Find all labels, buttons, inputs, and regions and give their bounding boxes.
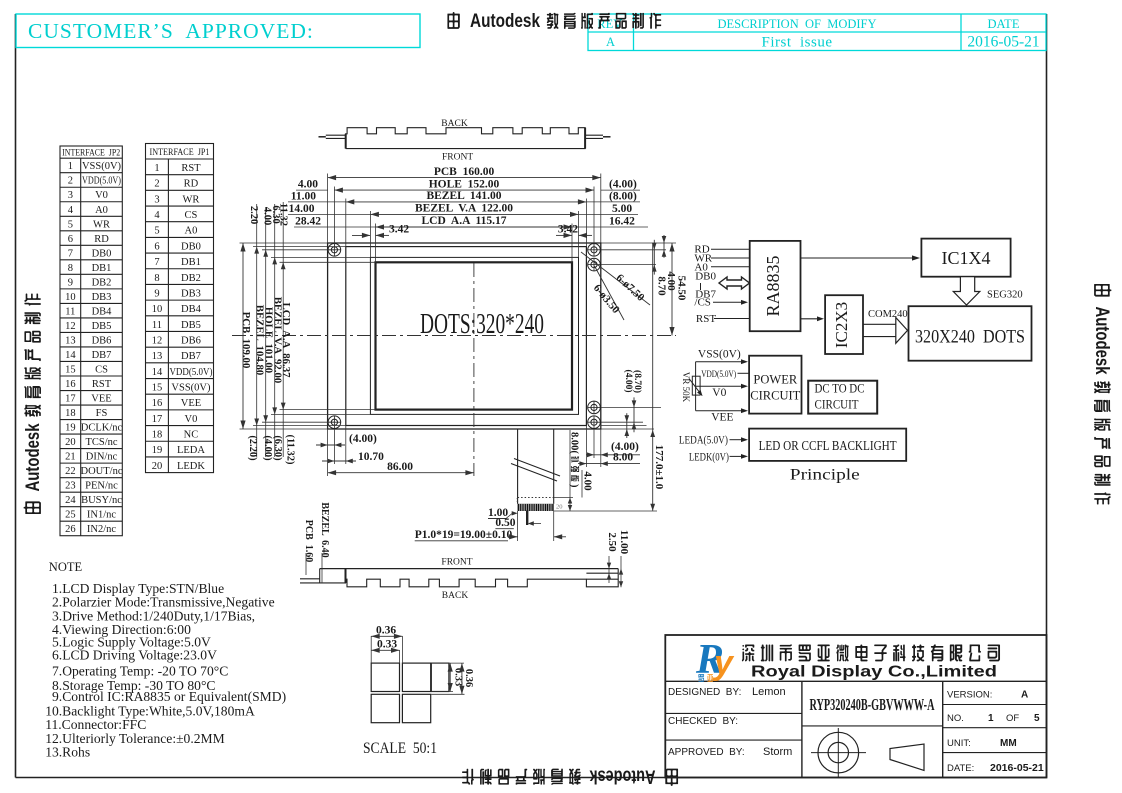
svg-text:4: 4: [68, 205, 74, 216]
svg-text:6.LCD Driving Voltage:23.0V: 6.LCD Driving Voltage:23.0V: [52, 648, 217, 663]
svg-text:LCD A.A 115.17: LCD A.A 115.17: [422, 215, 507, 227]
svg-text:Autodesk: Autodesk: [1091, 307, 1113, 375]
svg-text:6: 6: [68, 234, 73, 245]
svg-text:2016-05-21: 2016-05-21: [990, 762, 1044, 774]
svg-text:13: 13: [152, 351, 163, 362]
svg-text:BACK: BACK: [441, 119, 468, 129]
svg-text:POWER: POWER: [753, 373, 797, 387]
svg-text:CIRCUIT: CIRCUIT: [815, 398, 859, 412]
svg-text:BUSY/nc: BUSY/nc: [81, 495, 122, 506]
svg-text:PEN/nc: PEN/nc: [85, 481, 118, 492]
svg-text:3: 3: [68, 190, 73, 201]
svg-text:3: 3: [154, 194, 159, 205]
svg-text:7: 7: [154, 257, 159, 268]
svg-text:9: 9: [154, 288, 159, 299]
svg-text:A0: A0: [185, 226, 198, 237]
svg-text:5.00: 5.00: [612, 203, 632, 215]
svg-text:RST: RST: [696, 313, 716, 325]
svg-text:20: 20: [65, 437, 76, 448]
svg-text:25: 25: [65, 510, 76, 521]
svg-text:19: 19: [65, 423, 76, 434]
svg-text:10: 10: [65, 292, 76, 303]
svg-text:VDD(5.0V): VDD(5.0V): [82, 176, 121, 187]
svg-text:CS: CS: [185, 210, 198, 221]
svg-text:8.00(: 8.00(: [568, 432, 579, 454]
svg-text:2: 2: [68, 176, 73, 187]
svg-text:(2.20): (2.20): [247, 435, 258, 461]
svg-text:IN1/nc: IN1/nc: [87, 510, 116, 521]
svg-text:LEDK(0V): LEDK(0V): [689, 451, 729, 463]
svg-text:1: 1: [516, 497, 519, 504]
svg-text:LCD A.A 86.37: LCD A.A 86.37: [280, 303, 292, 379]
svg-text:NC: NC: [184, 430, 199, 441]
svg-text:16: 16: [65, 379, 76, 390]
svg-text:5: 5: [1034, 713, 1040, 724]
svg-text:DB5: DB5: [92, 321, 112, 332]
svg-text:11.00: 11.00: [291, 190, 316, 202]
svg-text:IC2X3: IC2X3: [832, 302, 851, 348]
svg-text:(4.00): (4.00): [609, 179, 637, 191]
svg-text:DB0: DB0: [181, 241, 201, 252]
svg-text:VEE: VEE: [91, 394, 111, 405]
svg-text:11: 11: [65, 306, 75, 317]
svg-text:DB3: DB3: [181, 288, 201, 299]
svg-text:54.50: 54.50: [676, 276, 688, 301]
svg-text:13: 13: [65, 335, 76, 346]
svg-text:VSS(0V): VSS(0V): [698, 349, 741, 361]
svg-text:Autodesk: Autodesk: [589, 766, 655, 788]
svg-text:6: 6: [154, 241, 159, 252]
svg-text:11.00: 11.00: [618, 530, 630, 555]
svg-text:INTERFACE JP2: INTERFACE JP2: [62, 148, 120, 159]
svg-text:V0: V0: [95, 190, 108, 201]
svg-text:LED OR CCFL BACKLIGHT: LED OR CCFL BACKLIGHT: [759, 439, 897, 454]
svg-text:11.Connector:FFC: 11.Connector:FFC: [45, 717, 146, 732]
svg-text:CHECKED BY:: CHECKED BY:: [668, 716, 738, 727]
svg-text:24: 24: [65, 495, 76, 506]
svg-text:BEZEL 6.40: BEZEL 6.40: [319, 502, 330, 557]
svg-text:HOLE 152.00: HOLE 152.00: [429, 178, 500, 190]
svg-text:COM240: COM240: [868, 309, 908, 320]
svg-text:VSS(0V): VSS(0V): [82, 161, 122, 172]
svg-text:13.Rohs: 13.Rohs: [45, 745, 90, 760]
svg-text:VDD(5.0V): VDD(5.0V): [169, 367, 212, 378]
svg-text:11: 11: [152, 320, 162, 331]
svg-text:28.42: 28.42: [295, 216, 321, 228]
svg-text:FS: FS: [96, 408, 108, 419]
svg-text:2.50: 2.50: [606, 532, 618, 552]
svg-text:RYP320240B-GBVWWW-A: RYP320240B-GBVWWW-A: [810, 695, 935, 714]
svg-text:177.0±1.0: 177.0±1.0: [653, 445, 665, 490]
svg-text:CUSTOMER’S APPROVED:: CUSTOMER’S APPROVED:: [28, 19, 314, 43]
svg-text:5: 5: [68, 219, 73, 230]
svg-text:1: 1: [988, 713, 994, 724]
svg-text:V0: V0: [185, 414, 198, 425]
svg-text:20: 20: [556, 504, 563, 511]
svg-text:26: 26: [65, 524, 76, 535]
svg-text:RA8835: RA8835: [763, 255, 783, 316]
svg-text:(8.00): (8.00): [609, 190, 637, 202]
svg-text:(6.30): (6.30): [272, 435, 283, 461]
svg-text:VEE: VEE: [181, 398, 201, 409]
svg-text:): ): [568, 484, 579, 488]
svg-text:LEDA(5.0V): LEDA(5.0V): [679, 435, 728, 447]
svg-text:DB6: DB6: [181, 335, 201, 346]
svg-text:PCB 109.00: PCB 109.00: [240, 312, 252, 369]
svg-text:15: 15: [65, 364, 76, 375]
svg-text:9.Control IC:RA8835 or Equival: 9.Control IC:RA8835 or Equivalent(SMD): [52, 689, 286, 705]
svg-text:FRONT: FRONT: [441, 558, 472, 568]
svg-text:6-ø7.50: 6-ø7.50: [614, 272, 647, 304]
svg-text:PCB 1.60: PCB 1.60: [303, 520, 314, 563]
svg-text:VDD(5.0V): VDD(5.0V): [701, 369, 736, 380]
svg-text:APPROVED BY:: APPROVED BY:: [668, 747, 745, 758]
svg-text:NOTE: NOTE: [49, 560, 83, 574]
svg-text:17: 17: [65, 394, 76, 405]
svg-text:A0: A0: [95, 205, 108, 216]
svg-text:12: 12: [152, 335, 163, 346]
svg-text:Autodesk: Autodesk: [470, 10, 540, 32]
svg-text:23: 23: [65, 481, 76, 492]
svg-text:4: 4: [154, 210, 160, 221]
svg-text:DCLK/nc: DCLK/nc: [81, 423, 123, 434]
svg-text:10.70: 10.70: [358, 451, 384, 463]
svg-text:IC1X4: IC1X4: [942, 248, 991, 268]
svg-text:OF: OF: [1006, 713, 1019, 724]
svg-text:DB2: DB2: [92, 277, 112, 288]
svg-text:DB6: DB6: [92, 335, 112, 346]
svg-text:11.32: 11.32: [278, 203, 289, 226]
svg-text:16: 16: [152, 398, 163, 409]
svg-text:Lemon: Lemon: [752, 686, 786, 698]
svg-text:1: 1: [68, 161, 73, 172]
svg-text:4.00: 4.00: [298, 179, 318, 191]
svg-text:86.00: 86.00: [387, 461, 413, 473]
svg-text:PCB 160.00: PCB 160.00: [434, 166, 495, 178]
svg-text:20: 20: [152, 461, 163, 472]
svg-text:DATE:: DATE:: [947, 763, 974, 774]
svg-text:7.Operating Temp: -20 TO 70°C: 7.Operating Temp: -20 TO 70°C: [52, 663, 228, 678]
svg-text:3.42: 3.42: [389, 224, 409, 236]
svg-text:DB4: DB4: [181, 304, 202, 315]
svg-text:SEG320: SEG320: [987, 290, 1023, 301]
svg-text:DB0: DB0: [695, 271, 716, 283]
svg-text:(4.00): (4.00): [262, 435, 273, 461]
svg-text:1: 1: [154, 163, 159, 174]
svg-text:VERSION:: VERSION:: [947, 690, 992, 701]
svg-text:y: y: [712, 644, 735, 682]
svg-text:8: 8: [154, 273, 159, 284]
svg-text:(4.00): (4.00): [623, 370, 634, 393]
svg-text:(4.00): (4.00): [349, 433, 377, 445]
svg-text:WR: WR: [93, 219, 110, 230]
svg-text:DB2: DB2: [181, 273, 201, 284]
svg-text:UNIT:: UNIT:: [947, 738, 971, 749]
svg-text:First issue: First issue: [761, 35, 832, 51]
svg-text:RD: RD: [94, 234, 109, 245]
svg-text:BEZEL V.A 122.00: BEZEL V.A 122.00: [415, 203, 513, 215]
svg-text:DB1: DB1: [92, 263, 112, 274]
svg-text:RD: RD: [184, 179, 199, 190]
svg-text:DB5: DB5: [181, 320, 201, 331]
svg-text:7: 7: [68, 248, 73, 259]
svg-text:DB4: DB4: [92, 306, 113, 317]
svg-text:DB0: DB0: [92, 248, 112, 259]
svg-text:DB3: DB3: [92, 292, 112, 303]
svg-text:CS: CS: [95, 364, 108, 375]
svg-text:RST: RST: [92, 379, 112, 390]
svg-text:VEE: VEE: [711, 412, 733, 424]
svg-text:Principle: Principle: [790, 467, 860, 484]
svg-text:DESCRIPTION OF MODIFY: DESCRIPTION OF MODIFY: [717, 17, 876, 31]
svg-text:IN2/nc: IN2/nc: [87, 524, 116, 535]
svg-text:2: 2: [154, 179, 159, 190]
svg-text:TCS/nc: TCS/nc: [85, 437, 117, 448]
svg-text:10: 10: [152, 304, 163, 315]
svg-text:19: 19: [152, 445, 163, 456]
svg-text:MM: MM: [1000, 738, 1017, 749]
svg-text:RST: RST: [181, 163, 201, 174]
svg-text:8: 8: [68, 263, 73, 274]
svg-text:DC TO DC: DC TO DC: [815, 382, 865, 396]
svg-text:A: A: [606, 35, 615, 49]
svg-text:4.00: 4.00: [582, 471, 594, 491]
svg-text:Royal Display Co.,Limited: Royal Display Co.,Limited: [751, 664, 997, 681]
svg-text:NO.: NO.: [947, 713, 964, 724]
svg-text:V0: V0: [712, 387, 726, 399]
svg-text:0.50: 0.50: [495, 517, 515, 529]
svg-text:/CS: /CS: [694, 297, 711, 309]
svg-text:17: 17: [152, 414, 163, 425]
svg-text:Autodesk: Autodesk: [22, 423, 44, 491]
svg-text:12: 12: [65, 321, 76, 332]
svg-text:16.42: 16.42: [609, 216, 635, 228]
svg-text:BEZEL 141.00: BEZEL 141.00: [426, 190, 501, 202]
svg-text:FRONT: FRONT: [442, 153, 473, 163]
svg-text:DIN/nc: DIN/nc: [86, 452, 118, 463]
svg-text:14.00: 14.00: [289, 203, 315, 215]
svg-text:LEDA: LEDA: [177, 445, 205, 456]
svg-text:18: 18: [65, 408, 76, 419]
svg-text:15: 15: [152, 383, 163, 394]
svg-text:Storm: Storm: [763, 746, 792, 758]
svg-text:14: 14: [65, 350, 76, 361]
svg-text:DATE: DATE: [988, 17, 1020, 31]
svg-text:DESIGNED BY:: DESIGNED BY:: [668, 687, 741, 698]
svg-text:A: A: [1021, 690, 1028, 701]
svg-text:18: 18: [152, 430, 163, 441]
svg-text:CIRCUIT: CIRCUIT: [750, 389, 800, 403]
svg-text:LEDK: LEDK: [177, 461, 205, 472]
svg-text:320X240 DOTS: 320X240 DOTS: [915, 328, 1025, 348]
svg-text:VSS(0V): VSS(0V): [171, 383, 211, 394]
svg-text:VR 50K: VR 50K: [681, 372, 691, 403]
svg-text:4.00: 4.00: [665, 271, 677, 291]
svg-text:5: 5: [154, 226, 159, 237]
svg-text:DB7: DB7: [181, 351, 201, 362]
svg-text:BACK: BACK: [442, 591, 469, 601]
svg-text:DB1: DB1: [181, 257, 201, 268]
svg-text:0.36: 0.36: [463, 669, 474, 687]
svg-text:(11.32): (11.32): [285, 434, 296, 465]
svg-text:21: 21: [65, 452, 76, 463]
svg-text:2016-05-21: 2016-05-21: [967, 34, 1039, 51]
svg-text:WR: WR: [182, 194, 199, 205]
svg-text:14: 14: [152, 367, 163, 378]
svg-text:22: 22: [65, 466, 76, 477]
svg-text:SCALE 50:1: SCALE 50:1: [363, 740, 437, 757]
svg-text:9: 9: [68, 277, 73, 288]
svg-text:8.00: 8.00: [613, 452, 633, 464]
svg-text:P1.0*19=19.00±0.10: P1.0*19=19.00±0.10: [415, 529, 513, 541]
svg-text:DB7: DB7: [92, 350, 112, 361]
svg-text:3.42: 3.42: [558, 224, 578, 236]
svg-text:INTERFACE JP1: INTERFACE JP1: [150, 147, 210, 158]
svg-text:DOUT/nc: DOUT/nc: [81, 466, 123, 477]
svg-text:2.20: 2.20: [248, 206, 259, 224]
